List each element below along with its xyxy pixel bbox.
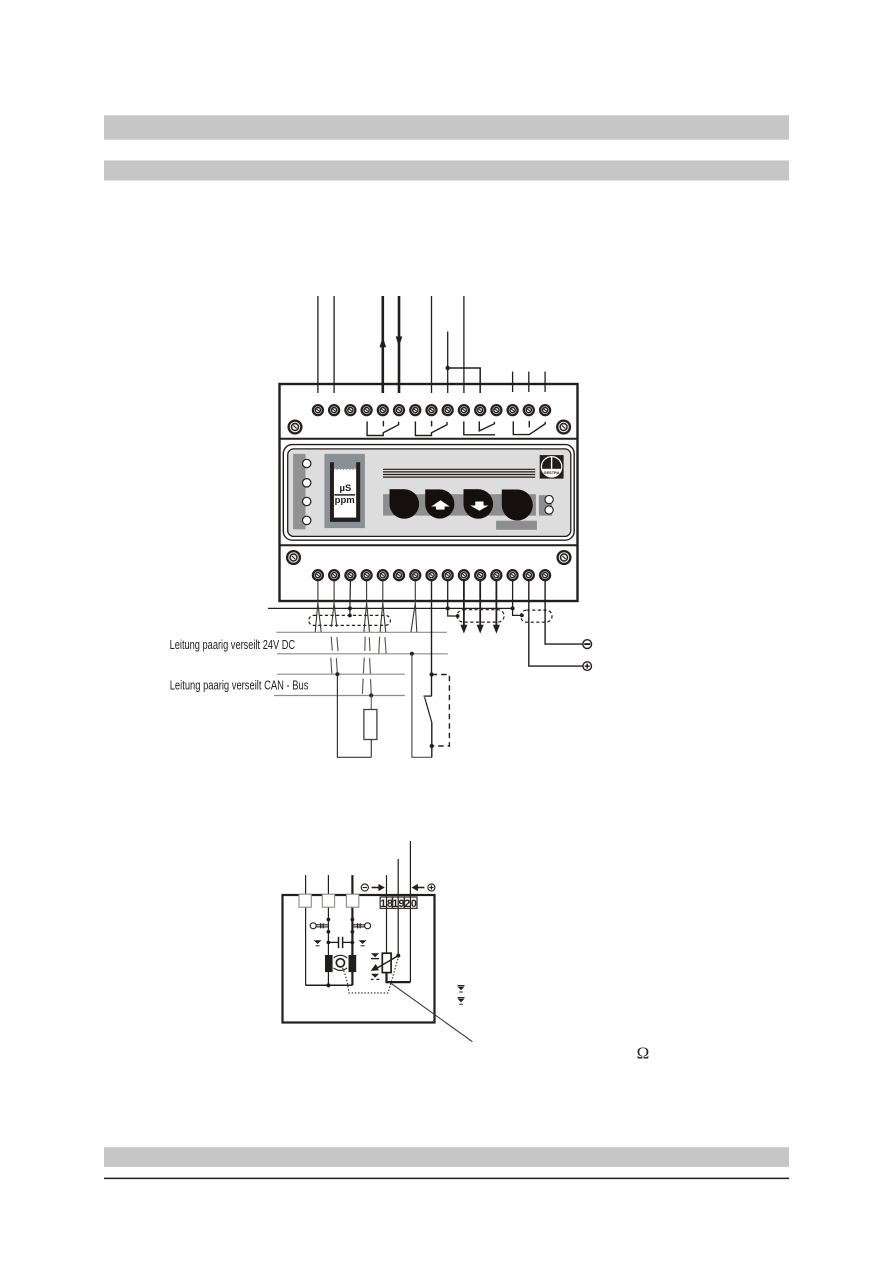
svg-text:2: 2: [404, 898, 410, 910]
svg-text:Ω: Ω: [637, 1044, 650, 1063]
svg-text:ppm: ppm: [335, 495, 355, 506]
svg-text:µS: µS: [339, 483, 351, 494]
svg-text:Leitung paarig verseilt CAN -: Leitung paarig verseilt CAN - Bus: [170, 678, 309, 693]
svg-text:0: 0: [411, 898, 417, 910]
svg-text:GESTRA: GESTRA: [544, 471, 560, 475]
svg-text:1: 1: [392, 898, 398, 910]
svg-text:1: 1: [380, 898, 386, 910]
svg-text:Leitung paarig verseilt 24V DC: Leitung paarig verseilt 24V DC: [170, 637, 296, 652]
